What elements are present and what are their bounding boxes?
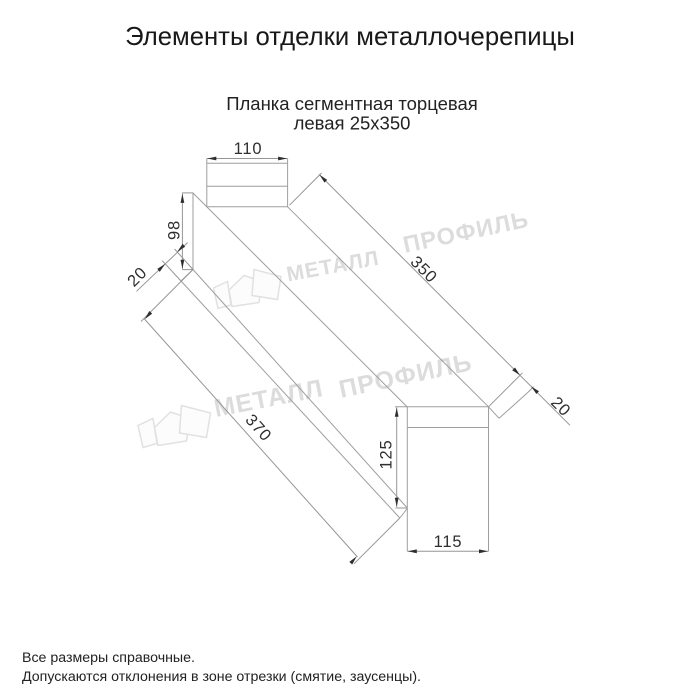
svg-text:Допускаются отклонения в зоне: Допускаются отклонения в зоне отрезки (с… [22,669,421,685]
svg-text:98: 98 [166,220,184,240]
svg-text:125: 125 [378,440,396,470]
svg-text:левая 25x350: левая 25x350 [294,113,411,134]
svg-text:110: 110 [234,140,263,158]
svg-text:Планка сегментная торцевая: Планка сегментная торцевая [226,93,478,114]
svg-text:115: 115 [434,533,463,551]
svg-text:Элементы отделки металлочерепи: Элементы отделки металлочерепицы [125,23,575,51]
svg-text:Все размеры справочные.: Все размеры справочные. [22,650,195,666]
